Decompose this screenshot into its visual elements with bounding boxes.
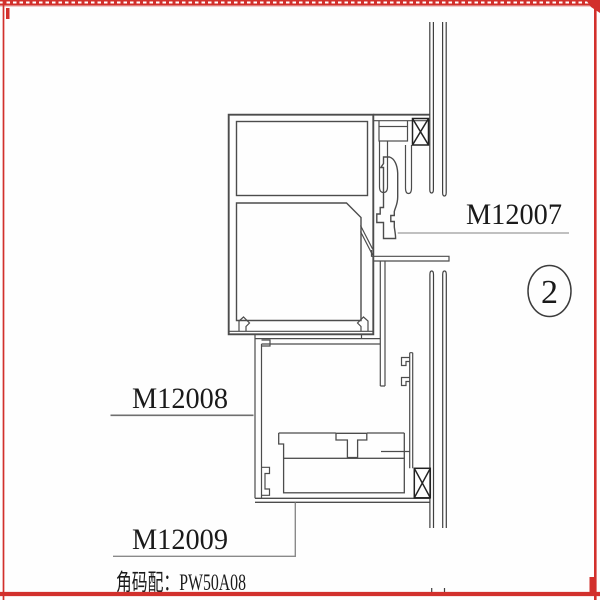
arm-pocket-webs	[379, 121, 408, 127]
profile-drawing: M12007 M12008 M12009 2 角码配：PW50A08	[0, 0, 600, 600]
gasket-channel-right	[406, 145, 412, 194]
sash-chamber	[284, 458, 405, 493]
frame-profile-m12008	[255, 334, 262, 498]
mullion-outer-box	[229, 115, 374, 335]
glazing-clip-left	[239, 317, 250, 331]
mullion-web-vertical	[380, 261, 385, 386]
label-m12007: M12007	[466, 198, 562, 231]
cad-detail-sheet: M12007 M12008 M12009 2 角码配：PW50A08	[0, 0, 600, 600]
detail-bubble-number: 2	[541, 274, 558, 311]
note-text: 角码配：PW50A08	[116, 570, 246, 595]
channel-hook-upper	[402, 358, 410, 366]
glazing-panel-lower-line2	[443, 271, 447, 528]
glazing-clip-right	[358, 317, 369, 331]
label-m12009: M12009	[132, 523, 228, 556]
sash-bottom-double-line	[255, 498, 431, 502]
sheet-border	[0, 0, 600, 600]
m12008-notch	[262, 340, 271, 346]
hatch-symbol-upper	[413, 119, 429, 146]
annotations: M12007 M12008 M12009 2 角码配：PW50A08	[111, 198, 572, 595]
border-artifact-topleft	[6, 8, 10, 19]
transom-plate	[372, 250, 450, 261]
border-corner-blob-bottomright	[590, 577, 597, 592]
glazing-channel	[410, 353, 413, 469]
glazing-panel-upper-line2	[443, 22, 447, 196]
brace-line	[361, 232, 373, 256]
arm-pocket	[379, 127, 408, 142]
m12008-clip-hook	[262, 467, 270, 495]
mullion-chamber-bottom	[237, 203, 362, 321]
channel-hook-lower	[402, 378, 410, 386]
sash-left-step	[279, 433, 284, 458]
glazing-panels	[430, 22, 447, 593]
glazing-edge-ticks	[432, 588, 445, 593]
border-corner-blob-topright	[586, 0, 600, 13]
hatch-symbol-lower	[414, 468, 430, 498]
mullion-step-horizontal	[255, 339, 380, 344]
mullion-chamber-top	[237, 122, 368, 196]
sash-t-tongue	[336, 433, 367, 457]
hatch-symbols	[413, 119, 431, 498]
brace-line	[361, 226, 373, 250]
label-m12008: M12008	[132, 382, 228, 415]
glazing-panel-upper-line1	[430, 22, 434, 193]
sash-profile-m12009	[255, 433, 431, 502]
frame-profile-m12007-assembly	[229, 115, 449, 503]
